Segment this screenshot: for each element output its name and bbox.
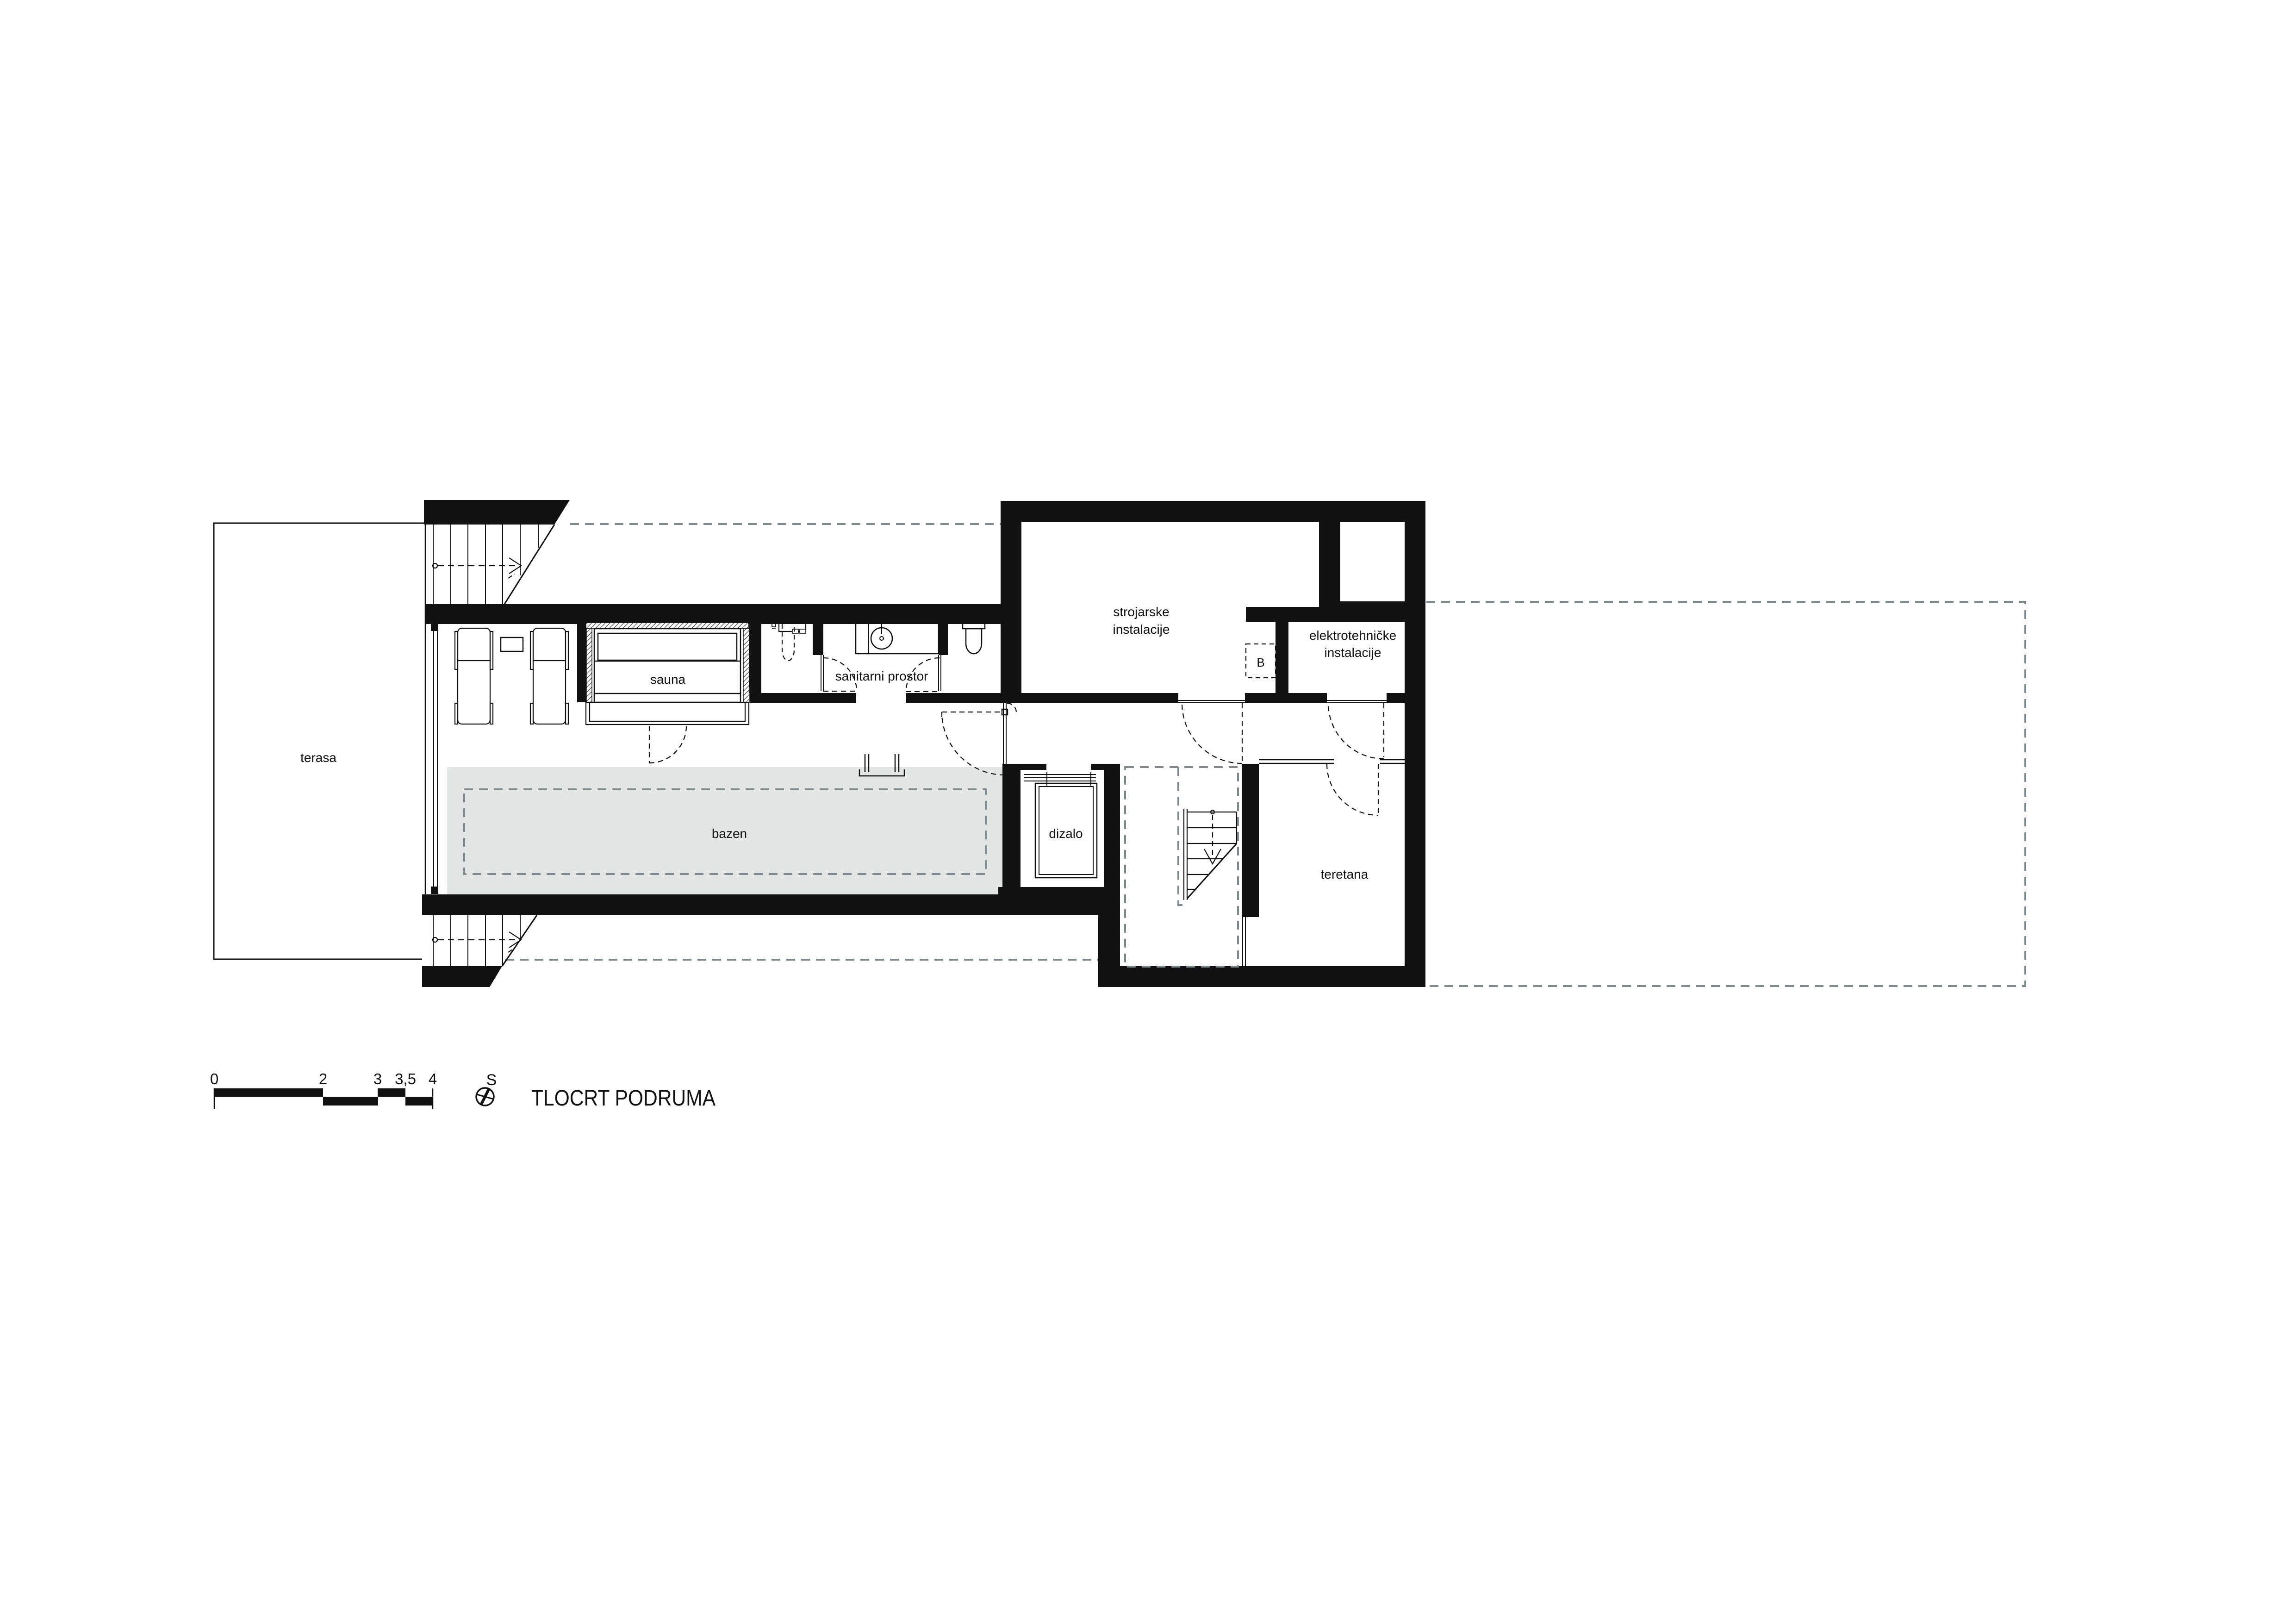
- svg-text:TLOCRT PODRUMA: TLOCRT PODRUMA: [531, 1086, 716, 1111]
- svg-text:elektrotehničke: elektrotehničke: [1309, 628, 1396, 643]
- svg-text:instalacije: instalacije: [1325, 645, 1381, 660]
- svg-text:3,5: 3,5: [395, 1070, 416, 1087]
- svg-text:4: 4: [429, 1070, 437, 1087]
- svg-text:B: B: [1257, 656, 1264, 669]
- svg-text:sanitarni prostor: sanitarni prostor: [835, 669, 928, 683]
- svg-text:instalacije: instalacije: [1113, 622, 1170, 637]
- svg-text:terasa: terasa: [300, 750, 336, 765]
- svg-text:teretana: teretana: [1321, 867, 1369, 881]
- svg-text:3: 3: [373, 1070, 382, 1087]
- svg-text:strojarske: strojarske: [1113, 605, 1169, 619]
- svg-text:bazen: bazen: [712, 826, 747, 841]
- svg-text:dizalo: dizalo: [1049, 826, 1083, 841]
- svg-text:S: S: [486, 1071, 497, 1089]
- svg-text:2: 2: [319, 1070, 327, 1087]
- svg-text:sauna: sauna: [650, 672, 686, 687]
- svg-text:0: 0: [210, 1070, 218, 1087]
